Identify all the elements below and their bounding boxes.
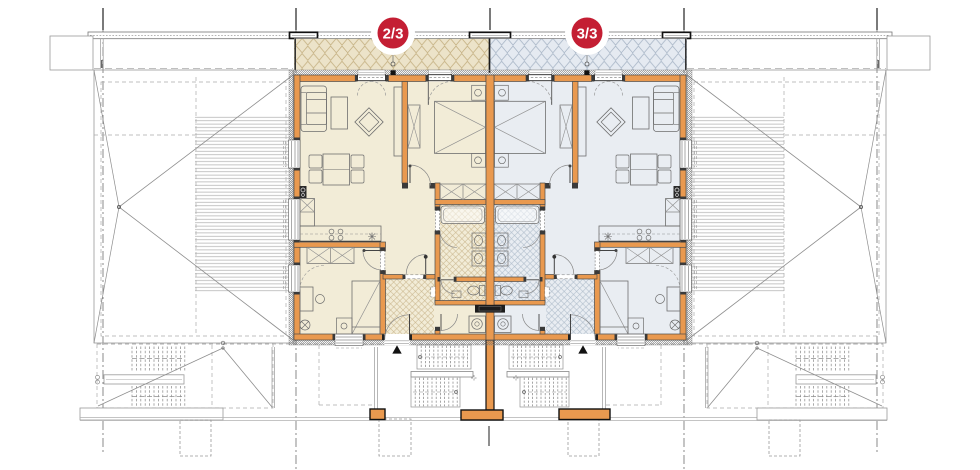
svg-text:2/3: 2/3 — [383, 26, 404, 43]
svg-text:3/3: 3/3 — [577, 26, 598, 43]
